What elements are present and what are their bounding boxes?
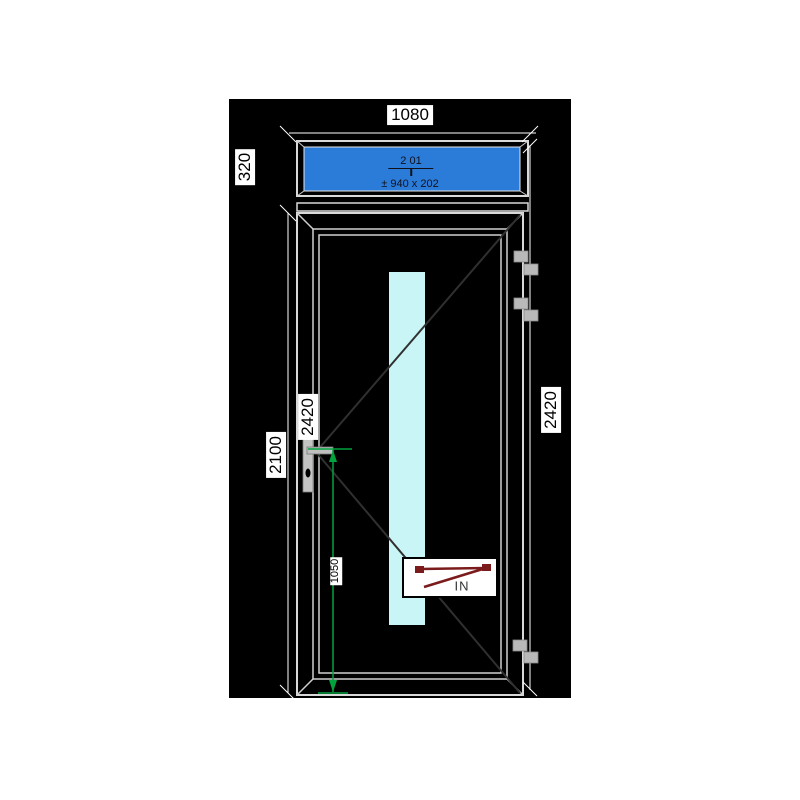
- in-arrow-shaft: [420, 568, 486, 569]
- dim-label-frame-width: 1080: [387, 105, 433, 125]
- keyhole-icon: [306, 469, 311, 478]
- dim-label-total-height-left: 2420: [298, 394, 318, 440]
- in-label: IN: [455, 579, 470, 594]
- dim-label-total-height-right: 2420: [541, 387, 561, 433]
- drawing-stage: 1080 320 2420 2100 2420 1050 2 01 ± 940 …: [0, 0, 800, 800]
- transom-position-tick: [410, 168, 412, 176]
- dim-label-handle-height: 1050: [330, 557, 342, 585]
- transom-glass-size-label: ± 940 x 202: [381, 178, 438, 190]
- coupling-profile: [297, 203, 528, 211]
- handle-lever[interactable]: [307, 447, 333, 454]
- transom-position-label: 2 01: [388, 155, 433, 169]
- dim-label-transom-height: 320: [235, 149, 255, 185]
- handle-plate[interactable]: [303, 433, 313, 492]
- dim-label-door-height: 2100: [266, 432, 286, 478]
- in-direction-box[interactable]: [403, 558, 497, 597]
